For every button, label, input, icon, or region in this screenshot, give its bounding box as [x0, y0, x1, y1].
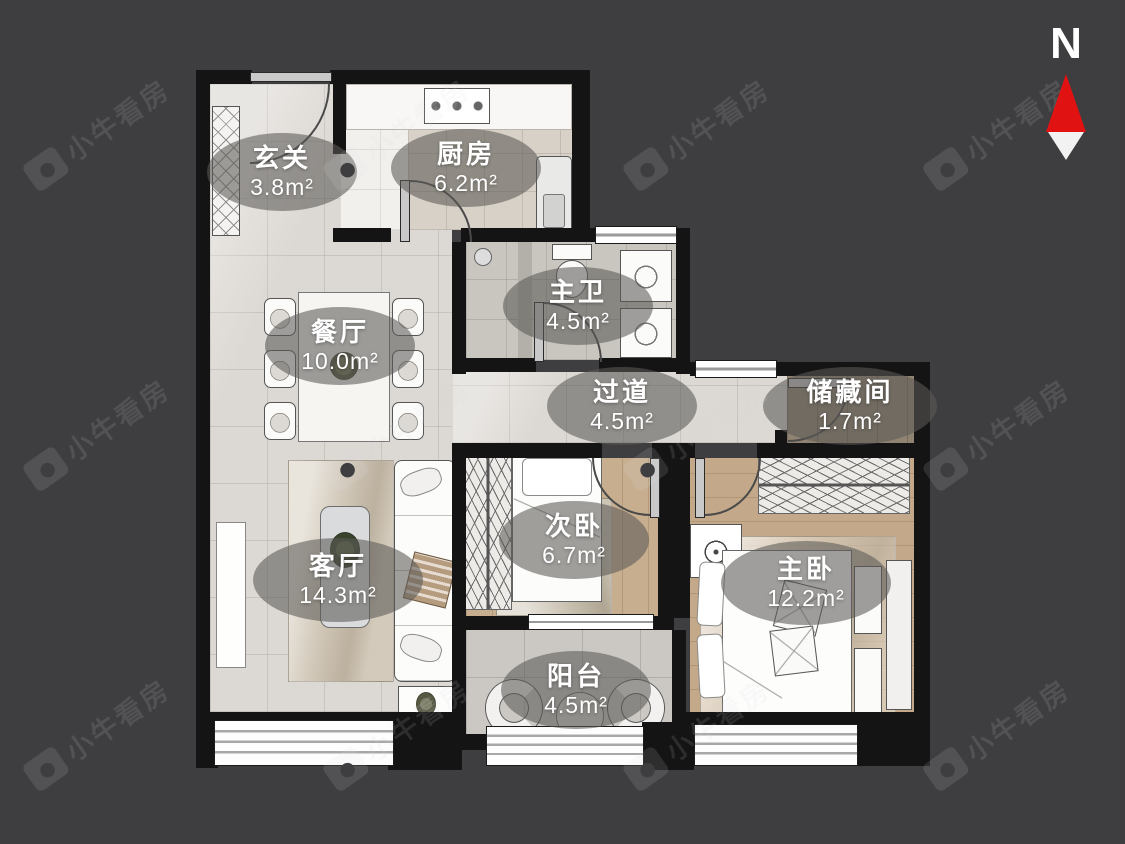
room-area: 10.0m²	[301, 348, 379, 374]
master-pillow	[696, 633, 725, 698]
room-label-balcony: 阳台 4.5m²	[501, 651, 651, 729]
kitchen-sink-basin	[543, 194, 565, 228]
bay-window	[214, 720, 394, 766]
wall	[757, 443, 930, 458]
room-name: 次卧	[545, 512, 603, 542]
tv-console	[216, 522, 246, 668]
wall	[452, 242, 466, 374]
stove	[424, 88, 490, 124]
room-label-storage: 储藏间 1.7m²	[763, 367, 937, 445]
room-name: 餐厅	[311, 318, 369, 348]
room-area: 4.5m²	[544, 692, 608, 718]
room-area: 3.8m²	[250, 174, 314, 200]
window	[528, 614, 654, 630]
room-name: 储藏间	[806, 378, 893, 408]
compass: N	[1032, 22, 1100, 160]
room-label-kitchen: 厨房 6.2m²	[391, 129, 541, 207]
room-label-master-bath: 主卫 4.5m²	[503, 267, 653, 345]
wall	[452, 443, 602, 458]
wall	[461, 228, 596, 242]
room-name: 厨房	[437, 140, 495, 170]
toilet-tank	[552, 244, 592, 260]
bedroom2-pillow	[522, 458, 592, 496]
bedroom2-door	[650, 458, 660, 518]
room-area: 14.3m²	[299, 582, 377, 608]
room-name: 客厅	[309, 552, 367, 582]
shower-head	[474, 248, 492, 266]
room-name: 主卧	[777, 555, 835, 585]
room-label-bedroom2: 次卧 6.7m²	[499, 501, 649, 579]
wall	[452, 443, 466, 748]
master-pillow	[696, 561, 725, 626]
wall	[330, 70, 590, 84]
nightstand	[854, 648, 882, 716]
room-label-living: 客厅 14.3m²	[253, 538, 423, 622]
room-area: 12.2m²	[767, 585, 845, 611]
room-label-hallway: 过道 4.5m²	[547, 367, 697, 445]
room-area: 4.5m²	[546, 308, 610, 334]
dining-chair	[264, 402, 296, 440]
window	[695, 360, 777, 378]
wall	[452, 358, 536, 372]
wall	[850, 726, 930, 766]
wall	[388, 712, 462, 770]
room-area: 1.7m²	[818, 408, 882, 434]
north-arrow-icon	[1046, 74, 1086, 132]
room-area: 6.7m²	[542, 542, 606, 568]
wall	[675, 228, 690, 242]
wall	[642, 722, 694, 770]
floorplan-page: { "compass": { "label": "N" }, "watermar…	[0, 0, 1125, 844]
dining-chair	[392, 402, 424, 440]
room-area: 6.2m²	[434, 170, 498, 196]
room-name: 过道	[593, 378, 651, 408]
bay-window	[694, 724, 858, 766]
room-name: 主卫	[549, 278, 607, 308]
room-label-entrance: 玄关 3.8m²	[207, 133, 357, 211]
compass-n-label: N	[1050, 22, 1082, 66]
master-wardrobe	[758, 456, 910, 514]
wall	[333, 228, 391, 242]
room-name: 阳台	[547, 662, 605, 692]
wall	[572, 70, 590, 242]
bay-window	[486, 726, 644, 766]
room-label-master-bedroom: 主卧 12.2m²	[721, 541, 891, 625]
room-name: 玄关	[253, 144, 311, 174]
window	[595, 226, 677, 244]
wall	[658, 443, 690, 618]
master-bed-cushion	[769, 625, 818, 676]
floorplan: 玄关 3.8m² 厨房 6.2m² 主卫 4.5m² 餐厅 10.0m² 过道 …	[0, 0, 1125, 844]
south-arrow-icon	[1048, 132, 1084, 160]
room-area: 4.5m²	[590, 408, 654, 434]
room-label-dining: 餐厅 10.0m²	[265, 307, 415, 385]
wall	[676, 242, 690, 374]
master-bedroom-door	[695, 458, 705, 518]
entrance-door	[250, 72, 332, 82]
